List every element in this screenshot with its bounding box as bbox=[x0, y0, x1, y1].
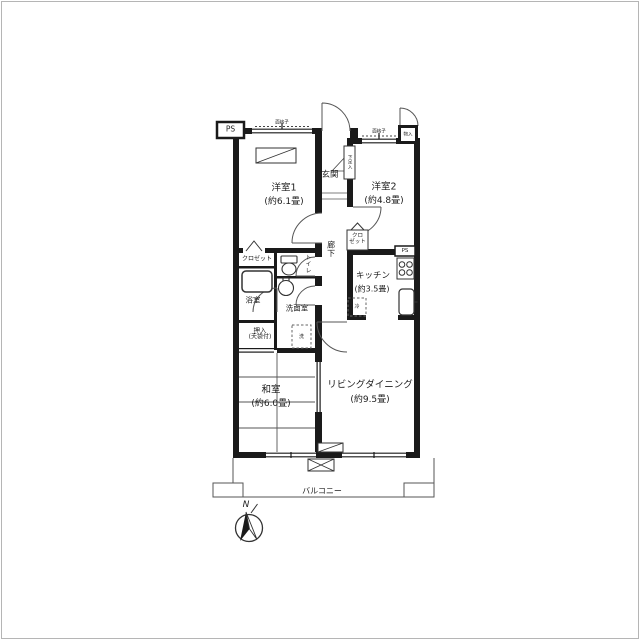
closet2-folding-door-icon bbox=[351, 223, 364, 230]
entrance-label: 玄関 bbox=[321, 171, 338, 181]
bathroom-label: 浴室 bbox=[246, 297, 261, 306]
toilet-icon bbox=[281, 256, 297, 275]
closet2-label-line2: ゼット bbox=[349, 240, 366, 246]
kitchen-size: (約3.5畳) bbox=[355, 284, 390, 293]
bedroom2-name: 洋室2 bbox=[371, 183, 396, 194]
floorplan-page: 洋室1 (約6.1畳) 洋室2 (約4.8畳) 玄関 下足入 廊下 クロゼット … bbox=[0, 0, 640, 640]
escape-hatch-icon bbox=[308, 459, 334, 471]
stove-icon bbox=[397, 258, 414, 279]
oshiire-note: (天袋付) bbox=[249, 334, 272, 340]
japanese-room-size: (約6.0畳) bbox=[251, 399, 290, 409]
washbasin-icon bbox=[279, 278, 294, 296]
shoe-box-label: 下足入 bbox=[347, 155, 352, 170]
entrance-storage-label: 物入 bbox=[404, 132, 413, 137]
washing-machine-label: 洗 bbox=[299, 335, 304, 341]
window-grate-right-label: 面格子 bbox=[372, 129, 386, 134]
compass-north-arrow bbox=[251, 504, 258, 513]
hallway-label: 廊下 bbox=[326, 241, 335, 258]
ps-top-label: PS bbox=[226, 126, 235, 135]
living-dining-name: リビングダイニング bbox=[327, 381, 413, 392]
bathtub-icon bbox=[242, 271, 272, 292]
window-grate-left-label: 面格子 bbox=[275, 120, 289, 125]
japanese-room-name: 和室 bbox=[261, 386, 280, 397]
refrigerator-label: 冷 bbox=[354, 305, 359, 311]
bedroom1-size: (約6.1畳) bbox=[264, 197, 303, 207]
shutter-box-icon bbox=[318, 443, 343, 452]
oshiire-label: 押入 (天袋付) bbox=[249, 327, 272, 340]
bedroom1-counter-icon bbox=[256, 148, 296, 163]
door-arcs bbox=[253, 103, 418, 352]
floorplan-drawing bbox=[0, 0, 640, 640]
ps-kitchen-label: PS bbox=[402, 248, 409, 254]
closet2-label: クロ ゼット bbox=[349, 234, 366, 246]
washroom-label: 洗面室 bbox=[286, 305, 309, 314]
closet1-label: クロゼット bbox=[242, 256, 272, 263]
kitchen-name: キッチン bbox=[356, 272, 390, 282]
balcony-label: バルコニー bbox=[302, 486, 342, 495]
closet1-folding-door-icon bbox=[246, 241, 262, 251]
fixtures bbox=[242, 256, 418, 315]
living-dining-size: (約9.5畳) bbox=[350, 395, 389, 405]
bedroom2-size: (約4.8畳) bbox=[364, 196, 403, 206]
bedroom1-name: 洋室1 bbox=[271, 184, 296, 195]
compass-north-label: N bbox=[243, 500, 250, 510]
toilet-label: トイレ bbox=[303, 254, 310, 274]
